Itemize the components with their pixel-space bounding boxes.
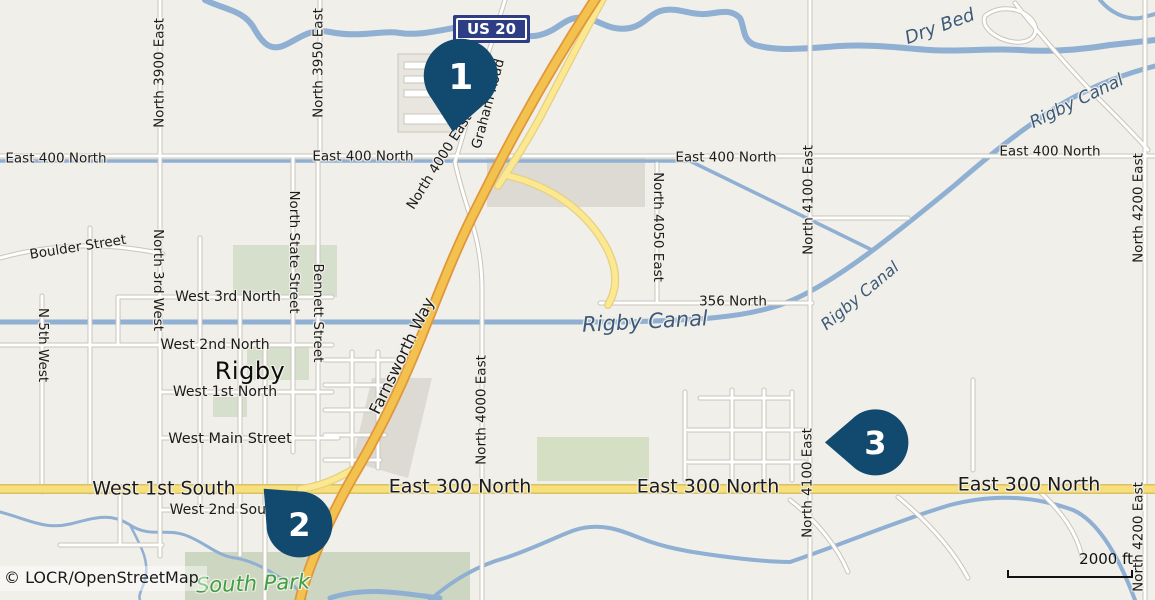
map-viewport[interactable]: East 400 NorthEast 400 NorthEast 400 Nor…: [0, 0, 1155, 600]
river-south-main: [430, 498, 1135, 600]
park-area: [233, 245, 337, 297]
map-attribution: © LOCR/OpenStreetMap: [0, 566, 207, 591]
basemap-svg: [0, 0, 1155, 600]
scalebar: [1007, 570, 1133, 578]
scalebar-label: 2000 ft: [1007, 550, 1133, 568]
svg-text:2: 2: [288, 506, 310, 544]
field-area: [537, 437, 649, 481]
minor-roads-fill: [0, 0, 1155, 600]
ditch-400-north: [0, 161, 872, 250]
map-marker-2[interactable]: 2: [247, 472, 352, 581]
map-marker-3[interactable]: 3: [823, 390, 928, 499]
map-marker-1[interactable]: 1: [402, 17, 520, 139]
park-area: [247, 347, 309, 380]
svg-text:3: 3: [864, 424, 886, 462]
svg-text:1: 1: [448, 57, 473, 98]
